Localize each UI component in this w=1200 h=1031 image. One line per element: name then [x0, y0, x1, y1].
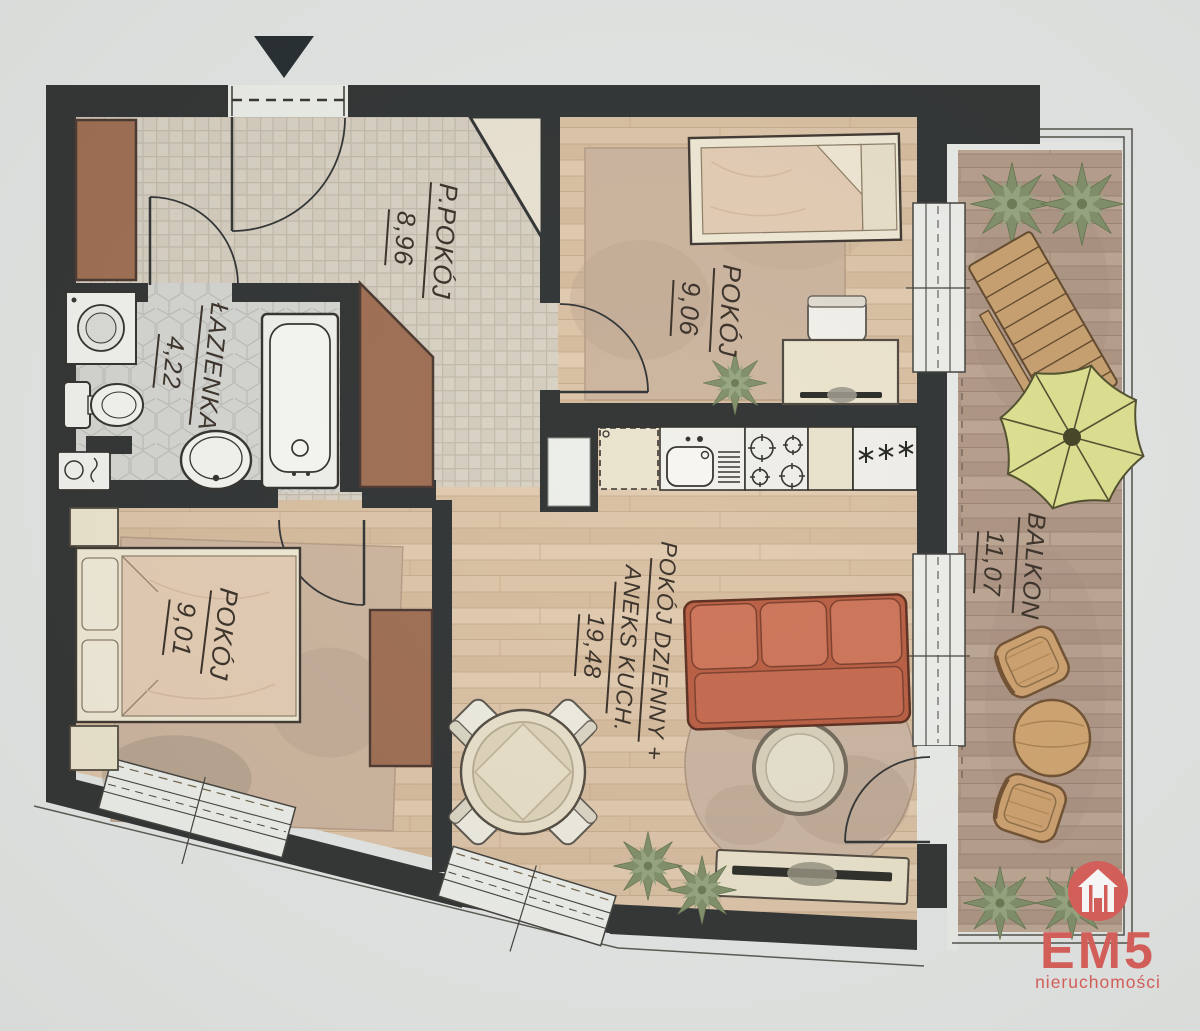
room-area: 11,07: [977, 530, 1010, 598]
floor-plan-page: P.POKÓJ 8,96 ŁAZIENKA 4,22 POKÓJ 9,06 PO…: [0, 0, 1200, 1031]
floor-plan-svg: P.POKÓJ 8,96 ŁAZIENKA 4,22 POKÓJ 9,06 PO…: [0, 0, 1200, 1031]
coffee-table: [754, 722, 846, 814]
plant: [963, 866, 1037, 940]
single-bed: [689, 134, 901, 244]
kitchen-stove: [745, 427, 808, 490]
room-name: POKÓJ: [713, 264, 748, 359]
patio-table: [1014, 700, 1090, 776]
desk: [783, 340, 898, 404]
desk-chair: [808, 296, 866, 342]
nightstand: [70, 726, 118, 770]
bathroom-small-basin: [58, 452, 110, 490]
nightstand: [70, 508, 118, 546]
sofa: [684, 594, 910, 730]
duct-shaft: [548, 438, 590, 506]
plant: [703, 351, 767, 415]
tv-cabinet: [715, 850, 909, 904]
washing-machine: [66, 292, 136, 364]
toilet: [64, 382, 143, 428]
kitchen-cabinet: [808, 427, 853, 490]
washbasin: [181, 431, 251, 489]
bathtub: [262, 314, 338, 488]
kitchen-sink: [660, 427, 745, 490]
kitchen-counter: [600, 427, 917, 490]
hall-wardrobe: [76, 120, 136, 280]
room-area: 9,06: [674, 281, 707, 337]
window-bedroom-small-balcony: [906, 203, 970, 372]
dining-set: [447, 696, 599, 848]
room-area: 4,22: [156, 335, 189, 390]
freezer-stars-icon: [853, 427, 917, 490]
plant: [1040, 162, 1123, 245]
window-living-balcony: [906, 554, 970, 746]
fridge-space: [600, 428, 658, 489]
room-area: 19,48: [578, 613, 609, 680]
room-area: 8,96: [388, 210, 422, 267]
bedroom-wardrobe: [370, 610, 432, 766]
brand-logo-subtext: nieruchomości: [1035, 972, 1161, 992]
plant: [667, 855, 736, 924]
